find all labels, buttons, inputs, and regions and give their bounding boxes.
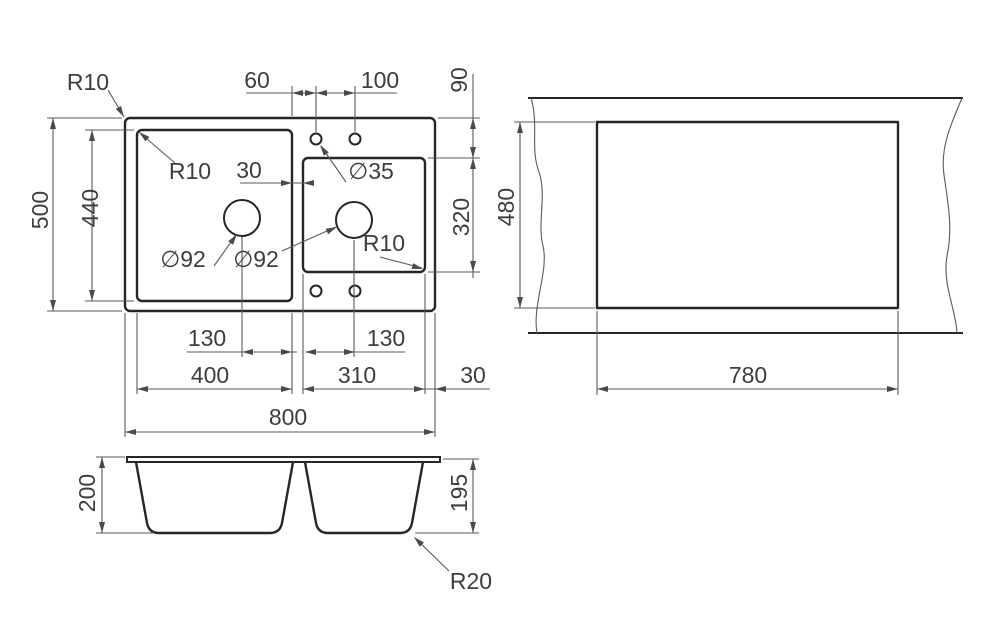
dim-500-label: 500	[27, 191, 53, 229]
dim-320-label: 320	[448, 198, 474, 236]
dim-780-label: 780	[729, 362, 767, 388]
radius-bottom-label: R20	[450, 568, 492, 594]
faucet-hole-dia-label: ∅35	[348, 158, 394, 184]
drain-dia-left-label: ∅92	[160, 246, 206, 272]
radius-outer-label: R10	[67, 69, 109, 95]
dim-30-edge-label: 30	[460, 362, 486, 388]
dim-30-divider-label: 30	[236, 157, 262, 183]
dim-800-label: 800	[269, 404, 307, 430]
dim-60-label: 60	[244, 67, 270, 93]
radius-left-bowl-label: R10	[169, 158, 211, 184]
radius-right-bowl-label: R10	[363, 230, 405, 256]
dim-130-right-label: 130	[367, 325, 405, 351]
dim-195-label: 195	[446, 474, 472, 512]
dim-90-label: 90	[446, 67, 472, 93]
dim-310-label: 310	[338, 362, 376, 388]
dim-440-label: 440	[77, 189, 103, 227]
dim-480-label: 480	[493, 188, 519, 226]
drain-dia-right-label: ∅92	[233, 246, 279, 272]
drawing-background	[0, 0, 1000, 643]
dim-130-left-label: 130	[188, 325, 226, 351]
dim-400-label: 400	[191, 362, 229, 388]
dim-100-label: 100	[361, 67, 399, 93]
technical-drawing-canvas: R10 60 100 90 500 440 R10 30 ∅35 ∅92 ∅92…	[0, 0, 1000, 643]
dim-200-label: 200	[74, 474, 100, 512]
